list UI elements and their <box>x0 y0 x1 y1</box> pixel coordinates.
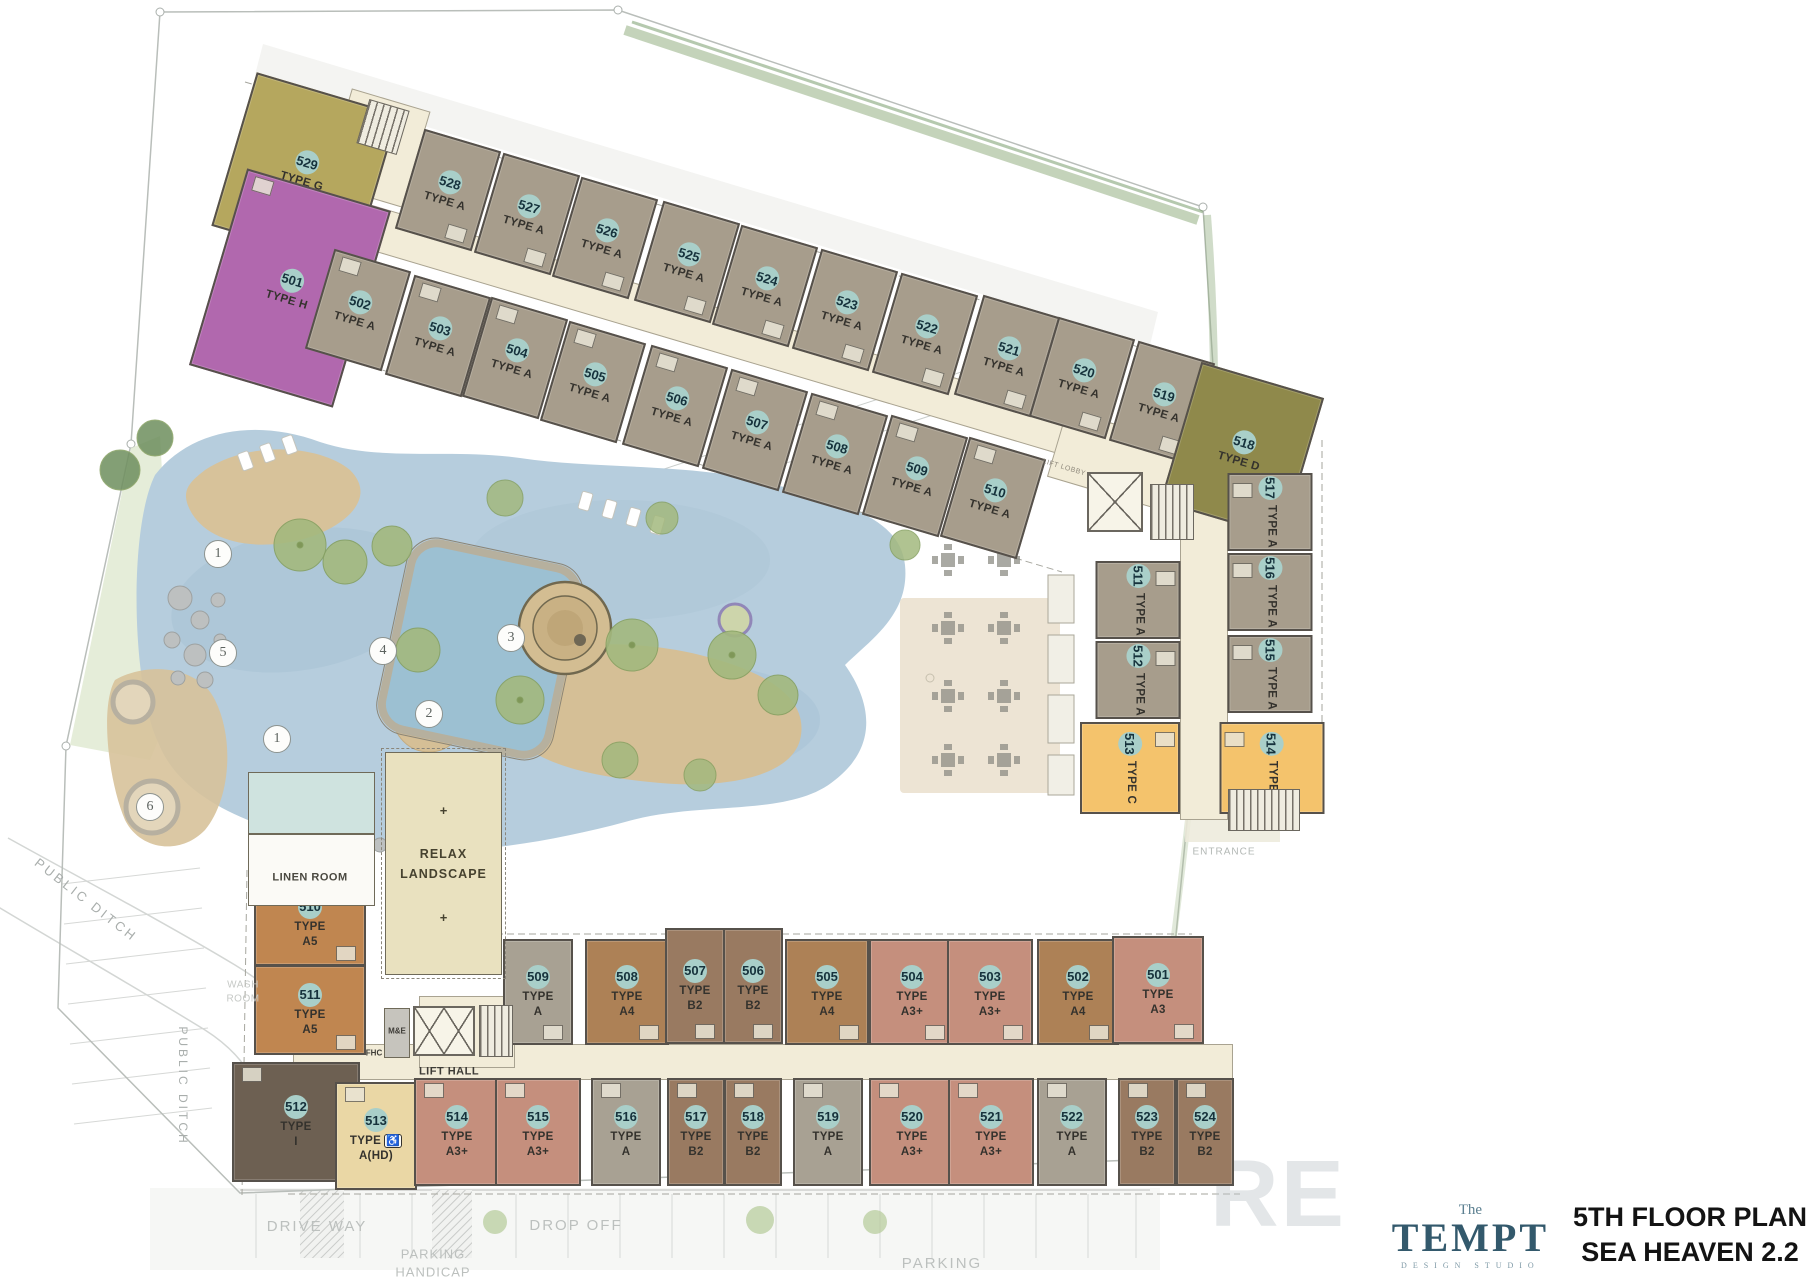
sheet-title: 5TH FLOOR PLAN SEA HEAVEN 2.2 <box>1573 1200 1807 1270</box>
title-block: The TEMPT DESIGN STUDIO 5TH FLOOR PLAN S… <box>1392 1200 1807 1270</box>
relax-landscape-area: + RELAX LANDSCAPE + <box>385 752 502 975</box>
logo-wordmark: TEMPT <box>1392 1219 1549 1257</box>
parking-area <box>0 838 1160 1270</box>
dining-terrace <box>900 544 1074 795</box>
site-landscape-svg <box>0 0 1813 1280</box>
tempt-design-studio-logo: The TEMPT DESIGN STUDIO <box>1392 1202 1549 1270</box>
plus-mark: + <box>440 803 448 818</box>
plus-mark: + <box>440 910 448 925</box>
me-room-block <box>384 1008 410 1058</box>
logo-subtitle: DESIGN STUDIO <box>1401 1261 1540 1270</box>
linen-room-block <box>248 834 375 906</box>
floor-plan-canvas: RE 529TYPE G528TYPE A527TYPE A526TYPE A5… <box>0 0 1813 1280</box>
relax-landscape-label: RELAX LANDSCAPE <box>400 844 487 884</box>
sheet-title-line1: 5TH FLOOR PLAN <box>1573 1200 1807 1235</box>
washroom-block <box>248 772 375 834</box>
background-watermark: RE <box>1210 1140 1346 1249</box>
sheet-title-line2: SEA HEAVEN 2.2 <box>1573 1235 1807 1270</box>
